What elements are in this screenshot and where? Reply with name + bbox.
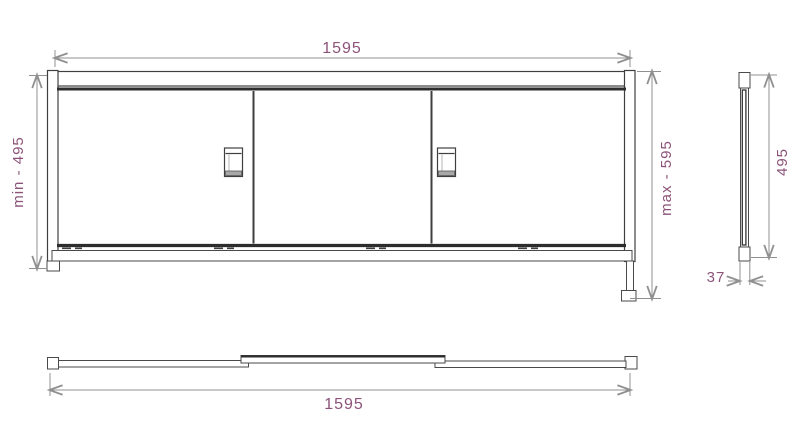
side-panel-insert xyxy=(742,90,746,245)
side-height-dimension: 495 xyxy=(751,75,791,258)
side-depth-dimension: 37 xyxy=(707,262,766,286)
side-height-label: 495 xyxy=(774,148,791,176)
plan-left-cap xyxy=(48,358,59,370)
front-right-leg xyxy=(627,261,634,291)
front-bottom-rail xyxy=(52,251,632,262)
side-bottom-cap xyxy=(739,247,750,261)
plan-view xyxy=(48,356,638,370)
front-min-height-dimension: min - 495 xyxy=(10,76,47,269)
drawing-canvas: 1595 min - 495 max - 595 495 37 xyxy=(0,0,800,432)
plan-width-dimension: 1595 xyxy=(50,373,630,413)
door-handle-left xyxy=(225,148,243,177)
front-max-height-label: max - 595 xyxy=(658,140,675,216)
front-right-foot xyxy=(622,291,637,302)
side-view xyxy=(739,73,750,262)
front-right-post xyxy=(625,71,636,262)
plan-right-door xyxy=(435,361,626,368)
front-width-label: 1595 xyxy=(322,40,362,57)
side-top-cap xyxy=(739,73,750,89)
front-left-foot xyxy=(47,261,60,271)
side-depth-label: 37 xyxy=(707,269,726,286)
front-width-dimension: 1595 xyxy=(55,40,630,67)
plan-right-cap xyxy=(625,357,637,370)
plan-width-label: 1595 xyxy=(324,396,364,413)
door-handle-right xyxy=(438,148,456,177)
front-min-height-label: min - 495 xyxy=(10,136,27,208)
front-top-rail xyxy=(50,72,633,87)
plan-left-door xyxy=(59,361,249,368)
front-left-post xyxy=(48,71,59,262)
front-max-height-dimension: max - 595 xyxy=(630,72,675,299)
front-view xyxy=(47,71,636,302)
bath-screen-technical-drawing: 1595 min - 495 max - 595 495 37 xyxy=(0,0,800,432)
